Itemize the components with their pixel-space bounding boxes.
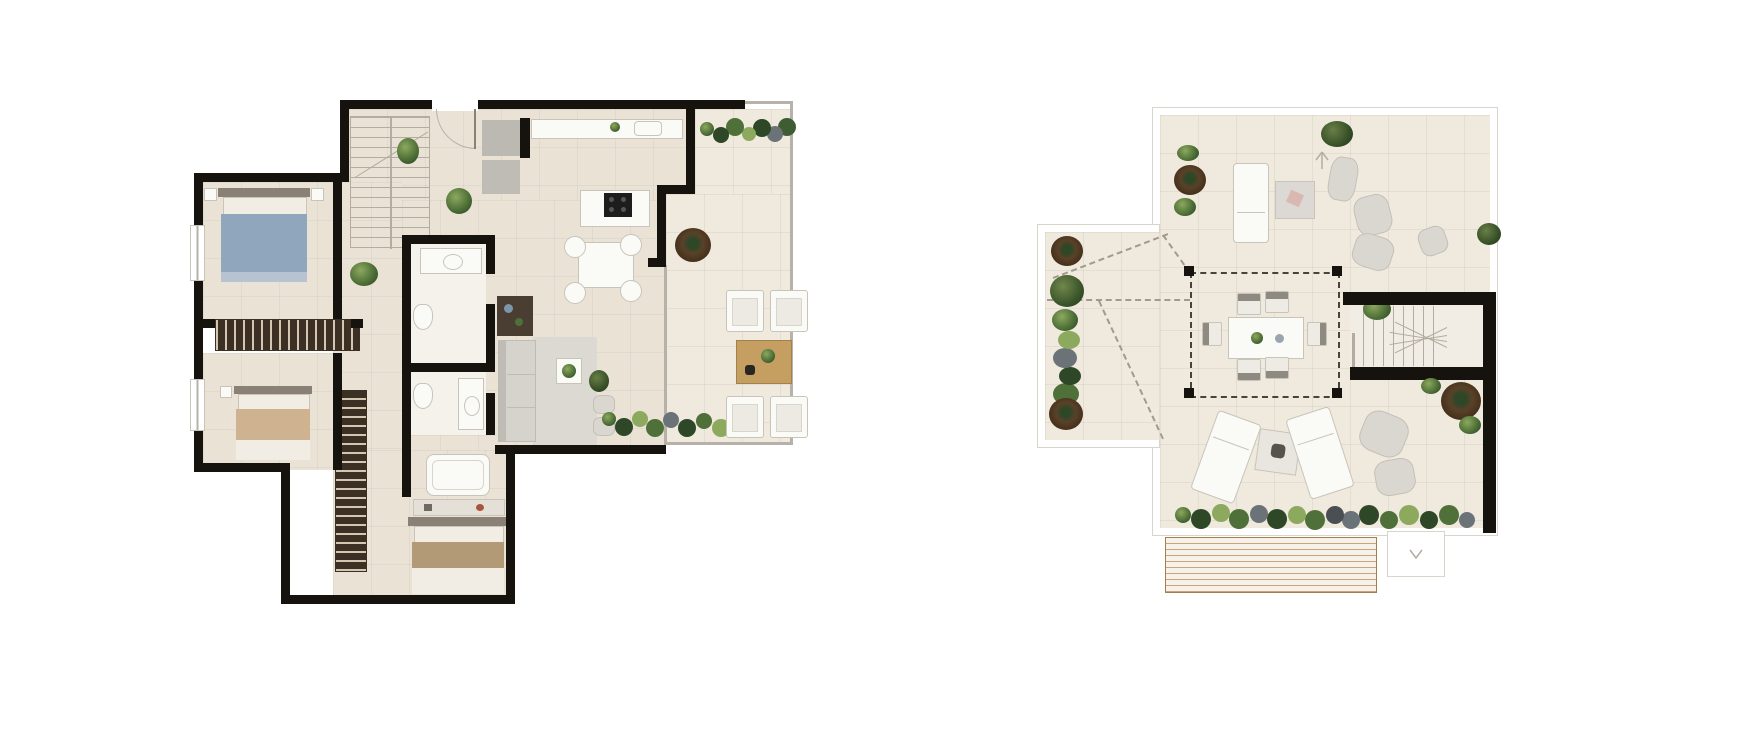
kitchen-tall-cabinet <box>482 160 520 194</box>
kitchen-sink <box>634 121 662 136</box>
side-table <box>1275 181 1315 219</box>
wall <box>486 393 495 435</box>
terrace-sliding-door <box>664 265 667 445</box>
wall <box>333 182 342 319</box>
terrace-hedge-bottom <box>602 412 616 426</box>
burner-icon <box>621 197 626 202</box>
bed-duvet <box>412 542 504 568</box>
tree-icon <box>1050 275 1084 307</box>
table-decor <box>745 365 755 375</box>
console-table <box>497 296 533 336</box>
console-decor <box>515 318 523 326</box>
cooktop <box>604 193 632 217</box>
wall <box>1483 292 1496 533</box>
terrace-hedge-top <box>700 122 714 136</box>
bed-headboard <box>234 386 312 394</box>
sun-lounger <box>1233 163 1269 243</box>
wall <box>495 445 666 454</box>
wall <box>402 363 495 372</box>
dining-chair <box>620 234 642 256</box>
bed-foot-sheets <box>412 568 504 594</box>
terrace-coffee-table <box>736 340 792 384</box>
wall-stub <box>520 118 530 158</box>
burner-icon <box>621 207 626 212</box>
bench-decor <box>424 504 432 511</box>
terrace-armchair <box>770 396 808 438</box>
wall <box>194 173 349 182</box>
dining-chair <box>1237 359 1261 381</box>
pouf <box>593 395 615 414</box>
sofa-cushion-line <box>507 374 535 375</box>
wall <box>506 445 515 604</box>
bathtub-inner <box>432 460 484 490</box>
staircase-rail <box>390 117 392 249</box>
wall <box>1343 292 1495 305</box>
wall <box>194 463 290 472</box>
armchair-seat <box>732 404 758 432</box>
sofa-back <box>499 341 506 441</box>
nightstand <box>220 386 232 398</box>
stair-bench-rail <box>1352 333 1355 369</box>
wall <box>402 235 495 244</box>
built-in-wardrobe <box>215 319 360 351</box>
wall <box>657 185 695 194</box>
staircase <box>350 116 430 248</box>
wall <box>333 353 342 470</box>
floor-plan-solarium <box>1035 95 1505 595</box>
kitchen-tall-cabinet <box>482 120 520 156</box>
pergola-post <box>1332 388 1342 398</box>
planting-border <box>1175 507 1191 523</box>
dining-chair <box>1265 357 1289 379</box>
round-planter <box>1174 165 1206 195</box>
wall <box>194 182 203 225</box>
pergola-post <box>1184 388 1194 398</box>
round-planter <box>1049 398 1083 430</box>
terrace-armchair <box>770 290 808 332</box>
nightstand <box>204 188 217 201</box>
toilet <box>413 383 433 409</box>
table-plant-icon <box>1251 332 1263 344</box>
round-planter <box>1441 382 1481 420</box>
terrace-balustrade-top <box>745 101 792 104</box>
round-planter <box>675 228 711 262</box>
vanity <box>458 378 484 430</box>
wall <box>402 435 411 497</box>
wall <box>194 353 203 379</box>
floor-plan-interior <box>170 90 800 620</box>
dining-chair <box>1237 293 1261 315</box>
terrace-armchair <box>726 396 764 438</box>
terrace-armchair <box>726 290 764 332</box>
burner-icon <box>609 197 614 202</box>
floor-plant-icon <box>589 370 609 392</box>
pergola-post <box>1184 266 1194 276</box>
bed-headboard <box>218 188 310 197</box>
corner-shrub-icon <box>1321 121 1353 147</box>
hedge-strip <box>1052 309 1078 331</box>
bed-headboard <box>408 517 508 526</box>
bed-foot-throw <box>221 272 307 282</box>
bed-foot-sheets <box>236 440 310 460</box>
bench-decor <box>476 504 484 511</box>
armchair-seat <box>776 404 802 432</box>
toilet <box>413 304 433 330</box>
wall <box>281 595 515 604</box>
screenshot-canvas: { "title": "Penthouse floor plans — inte… <box>0 0 1760 740</box>
wall <box>1350 367 1483 380</box>
folded-towel <box>1270 443 1286 459</box>
dining-chair <box>1202 322 1222 346</box>
bathtub <box>426 454 490 496</box>
wall <box>686 109 695 190</box>
wall <box>194 281 203 319</box>
wall <box>340 100 349 182</box>
sofa <box>498 340 536 442</box>
dining-chair <box>564 282 586 304</box>
basin-icon <box>443 254 463 270</box>
table-plant-icon <box>761 349 775 363</box>
window <box>190 379 205 431</box>
wall <box>281 463 290 604</box>
armchair-seat <box>732 298 758 326</box>
slatted-deck <box>1165 537 1377 593</box>
wall <box>486 304 495 363</box>
level-arrow-icon <box>1406 544 1426 564</box>
dining-table <box>1228 317 1304 359</box>
fern-icon <box>1174 198 1196 216</box>
door-leaf <box>474 109 476 149</box>
pergola-post <box>1332 266 1342 276</box>
lounger-fold-line <box>1213 436 1249 450</box>
dining-chair <box>564 236 586 258</box>
bed-duvet-tan <box>236 409 310 440</box>
coffee-table-plant-icon <box>562 364 576 378</box>
lounger-fold-line <box>1297 433 1333 446</box>
terrace-balustrade-bottom <box>666 442 792 445</box>
terrace-balustrade-right <box>790 101 793 445</box>
armchair-seat <box>776 298 802 326</box>
plant-icon <box>350 262 378 286</box>
plant-icon <box>397 138 419 164</box>
bed-duvet-blue <box>221 214 307 272</box>
shelf-bench <box>413 499 505 516</box>
folded-towel <box>1286 190 1304 208</box>
fern-icon <box>1177 145 1199 161</box>
landing-step <box>1387 531 1445 577</box>
console-decor <box>504 304 513 313</box>
burner-icon <box>609 207 614 212</box>
vanity <box>420 248 482 274</box>
window <box>190 225 205 281</box>
wall <box>648 258 666 267</box>
corner-shrub-icon <box>1477 223 1501 245</box>
kitchen-plant-icon <box>610 122 620 132</box>
wall <box>486 244 495 274</box>
lounger-fold-line <box>1237 212 1265 213</box>
nightstand <box>311 188 324 201</box>
basin-icon <box>464 396 480 416</box>
plant-icon <box>446 188 472 214</box>
wall <box>657 194 666 265</box>
round-planter <box>1051 236 1083 266</box>
wall <box>402 235 411 435</box>
area-rug <box>533 337 597 447</box>
fern-icon <box>1421 378 1441 394</box>
table-decor <box>1275 334 1284 343</box>
fern-icon <box>1459 416 1481 434</box>
wall <box>340 100 745 109</box>
dining-chair <box>1307 322 1327 346</box>
dining-chair <box>1265 291 1289 313</box>
wall <box>194 319 203 353</box>
wall-stub <box>351 319 363 328</box>
sofa-cushion-line <box>507 407 535 408</box>
wall-stub <box>203 319 215 328</box>
dining-chair <box>620 280 642 302</box>
